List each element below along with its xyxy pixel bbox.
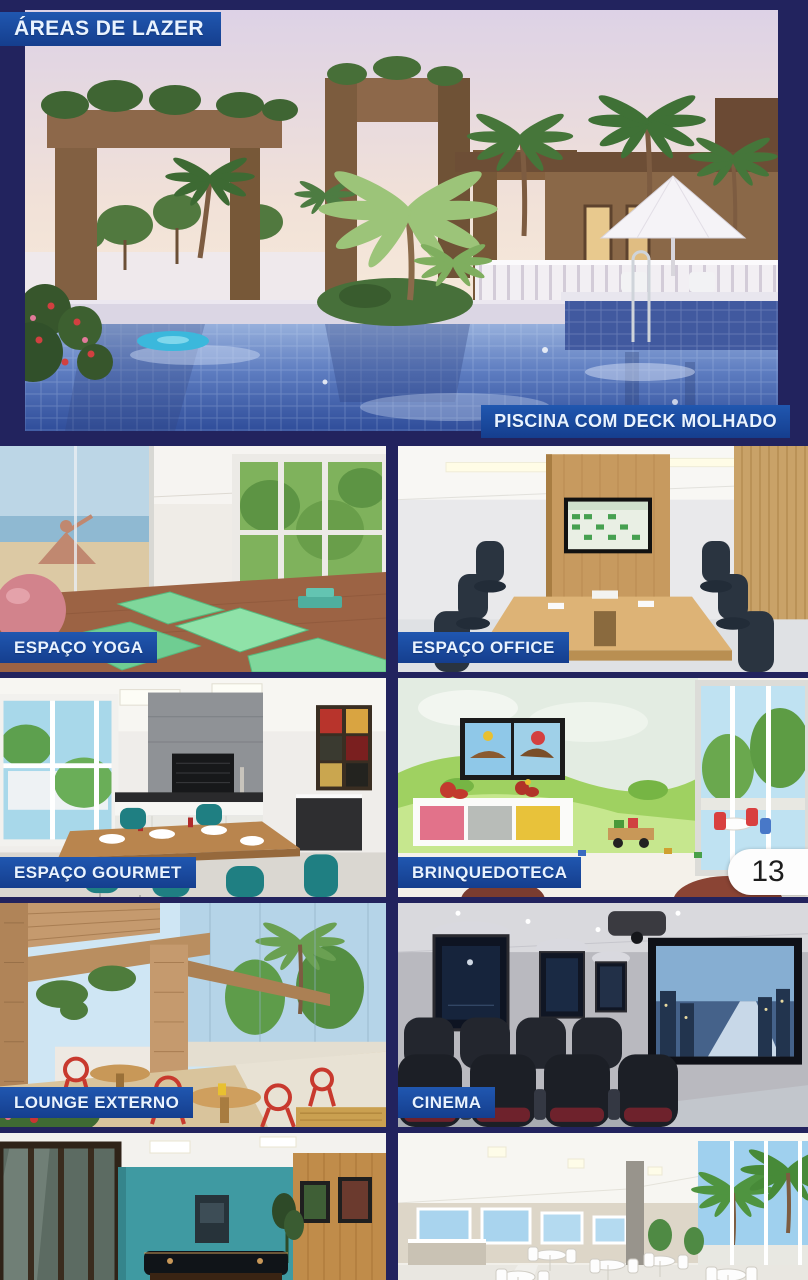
tv-screen [564,498,652,554]
pool-table [144,1251,288,1280]
hero-caption: PISCINA COM DECK MOLHADO [481,405,790,438]
beach-window [0,697,115,842]
party-hall-illustration [398,1133,808,1280]
playroom-window [698,683,808,873]
amenity-brinquedoteca: BRINQUEDOTECA 13 [398,678,808,897]
hero-section: ÁREAS DE LAZER PISCINA COM DECK MOLHADO [0,0,808,446]
amenity-label: BRINQUEDOTECA [398,857,581,888]
amenity-espaco-office: ESPAÇO OFFICE [398,446,808,672]
terrace-glass-wall [691,1141,808,1280]
pool-photo [25,10,778,431]
page-number-pill: 13 [728,849,808,895]
column [626,1161,644,1265]
amenity-label: LOUNGE EXTERNO [0,1087,193,1118]
wood-wall [293,1153,386,1280]
amenity-espaco-gourmet: ESPAÇO GOURMET [0,678,386,897]
sideboard [296,796,362,850]
amenity-espaco-yoga: ESPAÇO YOGA [0,446,386,672]
page-number: 13 [751,855,784,889]
page-title: ÁREAS DE LAZER [0,12,221,46]
movie-screen [648,938,802,1065]
pool-float [137,331,209,351]
pool-illustration [25,10,778,431]
amenity-party-hall [398,1133,808,1280]
wood-bench [296,1107,386,1127]
amenity-games-room [0,1133,386,1280]
brochure-page: ÁREAS DE LAZER PISCINA COM DECK MOLHADO [0,0,808,1280]
amenities-grid: ESPAÇO YOGA [0,446,808,1280]
amenity-label: CINEMA [398,1087,495,1118]
amenity-label: ESPAÇO OFFICE [398,632,569,663]
amenity-label: ESPAÇO YOGA [0,632,157,663]
food-picture-collage [316,705,372,790]
glass-doors [0,1145,118,1280]
amenity-cinema: CINEMA [398,903,808,1127]
amenity-label: ESPAÇO GOURMET [0,857,196,888]
cartoon-tv [460,718,565,780]
amenity-lounge-externo: LOUNGE EXTERNO [0,903,386,1127]
games-room-illustration [0,1133,386,1280]
